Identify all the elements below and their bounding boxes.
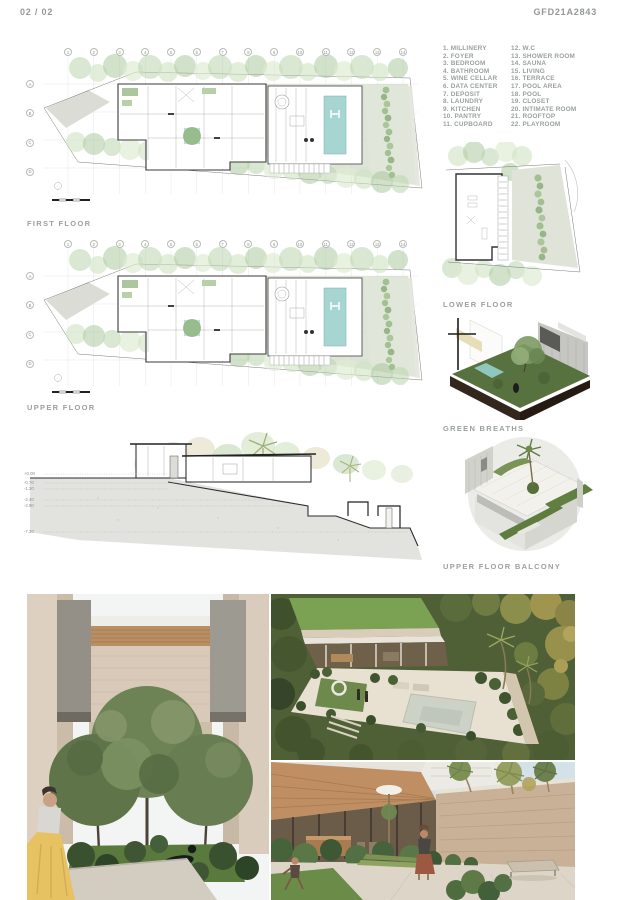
- legend-item: 14. SAUNA: [511, 60, 576, 68]
- grid-bubble: C: [26, 331, 34, 339]
- green-breaths-axon: [440, 312, 602, 420]
- grid-bubble: 2: [90, 240, 98, 248]
- grid-bubble: 10: [296, 48, 304, 56]
- grid-bubble: 14: [399, 48, 407, 56]
- balcony-volume: [465, 446, 593, 550]
- legend-item: 7. DEPOSIT: [443, 91, 498, 99]
- grid-bubble: 13: [373, 48, 381, 56]
- grid-bubble: 8: [244, 48, 252, 56]
- legend-item: 15. LIVING: [511, 68, 576, 76]
- grid-bubble: 9: [270, 48, 278, 56]
- legend-item: 3. BEDROOM: [443, 60, 498, 68]
- stone-wall: [436, 778, 575, 867]
- grid-bubble: 1: [64, 48, 72, 56]
- grid-bubble: 4: [141, 240, 149, 248]
- legend-item: 9. KITCHEN: [443, 106, 498, 114]
- upper-floor-balcony-axon: [437, 434, 607, 560]
- grid-bubble: B: [26, 301, 34, 309]
- green-breaths-label: GREEN BREATHS: [443, 424, 524, 433]
- page-number: 02 / 02: [20, 7, 53, 17]
- room-legend-col1: 1. MILLINERY2. FOYER3. BEDROOM4. BATHROO…: [443, 45, 498, 129]
- grid-bubble: 5: [167, 240, 175, 248]
- grid-bubble: 4: [141, 48, 149, 56]
- legend-item: 6. DATA CENTER: [443, 83, 498, 91]
- grid-bubble: 14: [399, 240, 407, 248]
- garden-terrace-render: [271, 762, 575, 900]
- legend-item: 19. CLOSET: [511, 98, 576, 106]
- site-section-drawing: [18, 428, 432, 578]
- grid-bubble: 11: [322, 48, 330, 56]
- legend-item: 2. FOYER: [443, 53, 498, 61]
- grid-bubble: D: [26, 168, 34, 176]
- grid-bubble: 7: [219, 240, 227, 248]
- lower-floor-plan-drawing: [440, 142, 602, 294]
- level-label: -0.70: [24, 480, 34, 485]
- level-label: -1.20: [24, 486, 34, 491]
- legend-item: 5. WINE CELLAR: [443, 75, 498, 83]
- upper-floor-balcony-label: UPPER FLOOR BALCONY: [443, 562, 561, 571]
- legend-item: 10. PANTRY: [443, 113, 498, 121]
- grid-bubble: 3: [116, 48, 124, 56]
- first-floor-grid-rows: ABCD: [26, 80, 34, 176]
- grid-bubble: 1: [64, 240, 72, 248]
- presentation-board: 02 / 02 GFD21A2843: [0, 0, 617, 900]
- lounge-chairs: [507, 860, 559, 881]
- legend-item: 11. CUPBOARD: [443, 121, 498, 129]
- sheet-code: GFD21A2843: [533, 7, 597, 17]
- grid-bubble: 6: [193, 48, 201, 56]
- ground-mass: [30, 478, 422, 560]
- grid-bubble: 6: [193, 240, 201, 248]
- grid-bubble: 8: [244, 240, 252, 248]
- figure: [513, 383, 519, 393]
- legend-item: 16. TERRACE: [511, 75, 576, 83]
- grid-bubble: 11: [322, 240, 330, 248]
- legend-item: 1. MILLINERY: [443, 45, 498, 53]
- first-floor-label: FIRST FLOOR: [27, 219, 91, 228]
- lower-floor-label: LOWER FLOOR: [443, 300, 514, 309]
- grid-bubble: 2: [90, 48, 98, 56]
- upper-floor-grid-rows: ABCD: [26, 272, 34, 368]
- grid-bubble: 7: [219, 48, 227, 56]
- grid-bubble: 13: [373, 240, 381, 248]
- upper-floor-label: UPPER FLOOR: [27, 403, 95, 412]
- level-label: -2.40: [24, 497, 34, 502]
- room-legend-col2: 12. W.C13. SHOWER ROOM14. SAUNA15. LIVIN…: [511, 45, 576, 129]
- grid-bubble: 12: [347, 48, 355, 56]
- legend-item: 21. ROOFTOP: [511, 113, 576, 121]
- grid-bubble: 10: [296, 240, 304, 248]
- level-label: -2.90: [24, 503, 34, 508]
- grid-bubble: C: [26, 139, 34, 147]
- grid-bubble: 9: [270, 240, 278, 248]
- upper-floor-plan-drawing: [18, 236, 432, 408]
- first-floor-grid-columns: 1234567891011121314: [64, 48, 407, 56]
- legend-item: 8. LAUNDRY: [443, 98, 498, 106]
- upper-floor-grid-columns: 1234567891011121314: [64, 240, 407, 248]
- level-label: -7.20: [24, 529, 34, 534]
- grid-bubble: B: [26, 109, 34, 117]
- legend-item: 18. POOL: [511, 91, 576, 99]
- courtyard-render: [27, 594, 269, 900]
- first-floor-plan-drawing: [18, 44, 432, 216]
- legend-item: 12. W.C: [511, 45, 576, 53]
- aerial-terrace-render: [271, 594, 575, 760]
- level-label: +0.00: [24, 471, 35, 476]
- legend-item: 17. POOL AREA: [511, 83, 576, 91]
- lower-floor-rooms: [456, 174, 508, 260]
- legend-item: 13. SHOWER ROOM: [511, 53, 576, 61]
- legend-item: 20. INTIMATE ROOM: [511, 106, 576, 114]
- legend-item: 4. BATHROOM: [443, 68, 498, 76]
- grid-bubble: D: [26, 360, 34, 368]
- grid-bubble: 12: [347, 240, 355, 248]
- grid-bubble: A: [26, 272, 34, 280]
- grid-bubble: 3: [116, 240, 124, 248]
- legend-item: 22. PLAYROOM: [511, 121, 576, 129]
- grid-bubble: A: [26, 80, 34, 88]
- grid-bubble: 5: [167, 48, 175, 56]
